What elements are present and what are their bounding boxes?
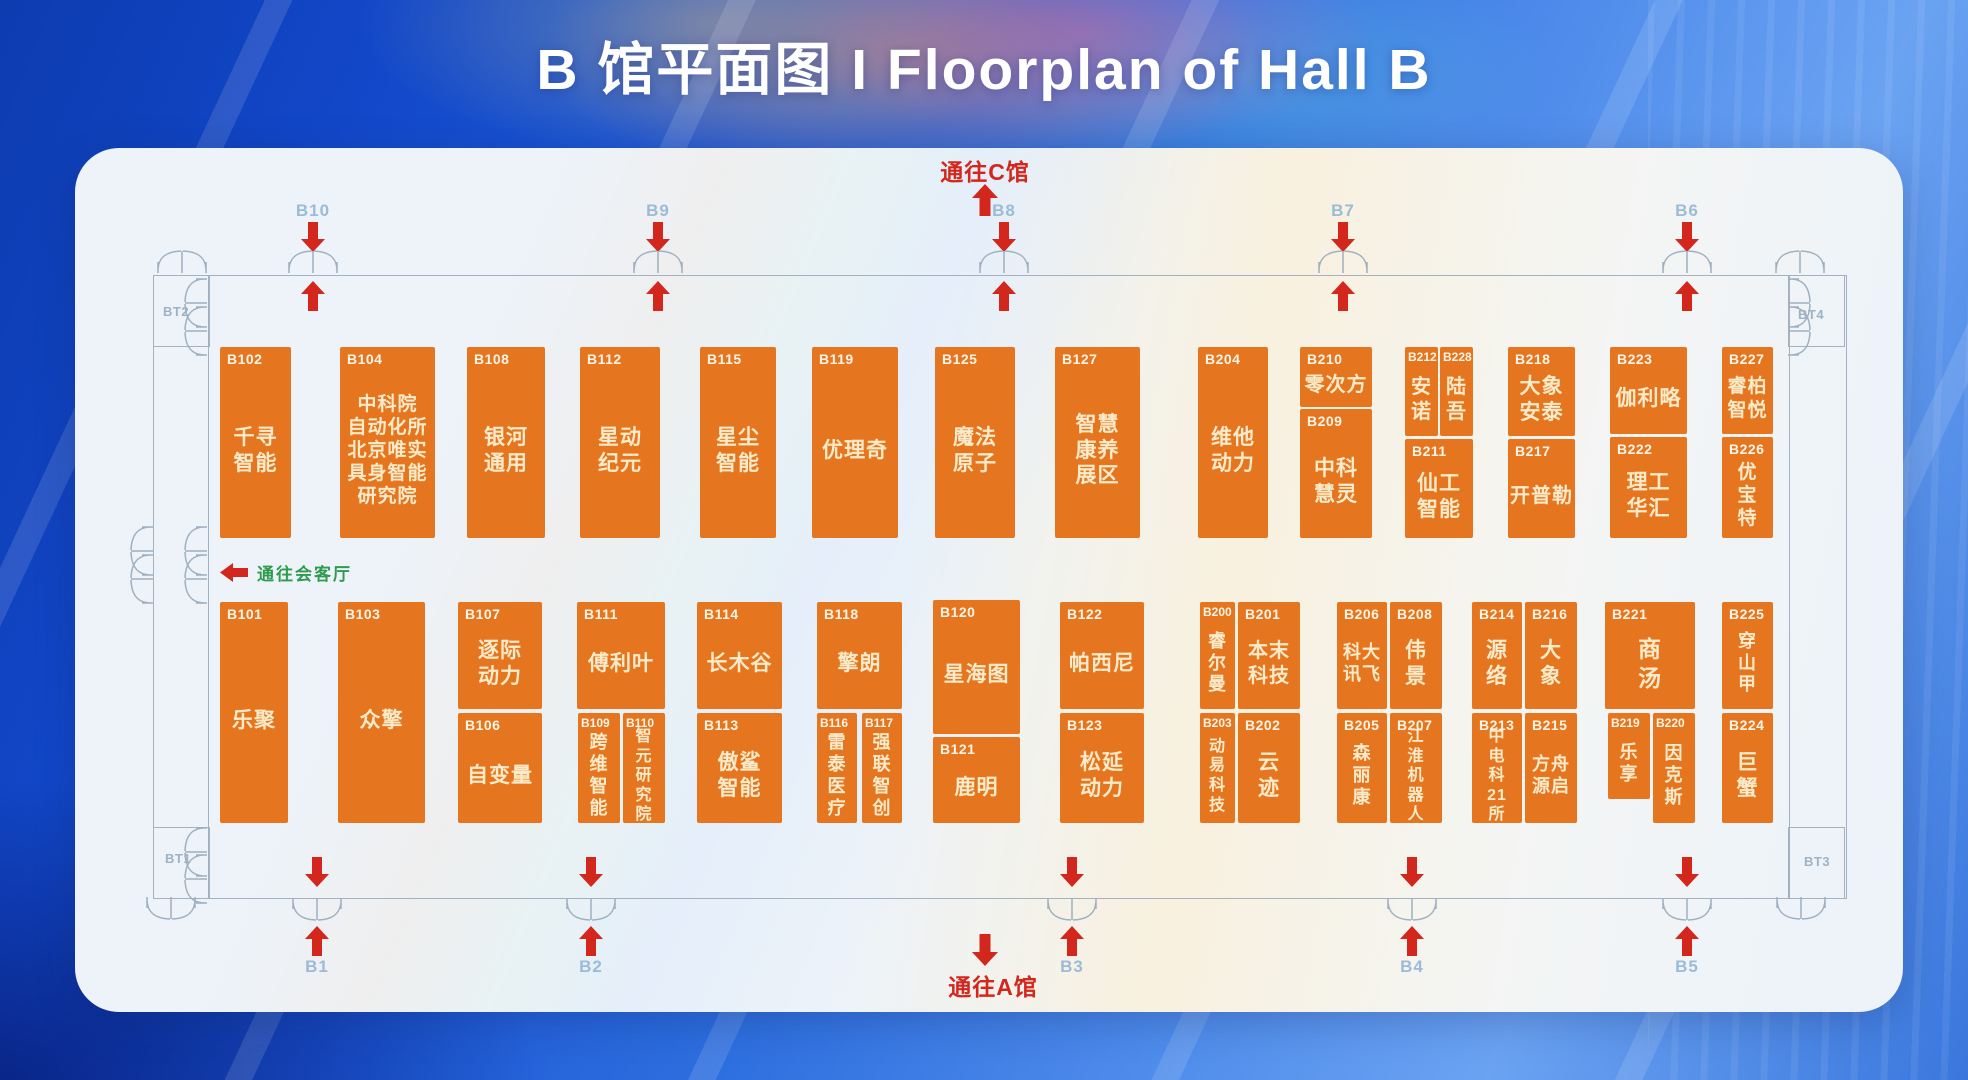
booth-name: 乐聚 xyxy=(220,602,288,823)
page-title: B 馆平面图 I Floorplan of Hall B xyxy=(0,24,1968,106)
booth-B106: B106自变量 xyxy=(458,713,542,823)
booth-B213: B213中电科21所 xyxy=(1472,713,1522,823)
booth-name: 乐享 xyxy=(1608,713,1650,799)
booth-name: 江淮机器人 xyxy=(1390,713,1442,823)
booth-name: 安诺 xyxy=(1405,347,1438,436)
booth-name: 众擎 xyxy=(338,602,425,823)
booth-B117: B117强联智创 xyxy=(862,713,902,823)
double-door-icon xyxy=(127,553,153,605)
booth-B220: B220因克斯 xyxy=(1653,713,1695,823)
sign-to-lounge-text: 通往会客厅 xyxy=(257,560,352,585)
gate-label-B1: B1 xyxy=(305,957,329,977)
booth-name: 陆吾 xyxy=(1440,347,1473,436)
booth-name: 因克斯 xyxy=(1653,713,1695,823)
double-door-icon xyxy=(1661,247,1713,273)
booth-name: 睿柏智悦 xyxy=(1722,347,1773,434)
double-door-icon xyxy=(181,553,207,605)
booth-name: 银河通用 xyxy=(467,347,545,538)
booth-B210: B210零次方 xyxy=(1300,347,1372,407)
sign-to-hall-c: 通往C馆 xyxy=(925,153,1045,187)
floorplan-page: B 馆平面图 I Floorplan of Hall B B10 B9 B8 xyxy=(0,0,1968,1080)
gate-arrow-down-icon xyxy=(579,857,603,887)
double-door-icon xyxy=(1775,897,1827,923)
booth-B125: B125魔法原子 xyxy=(935,347,1015,538)
gate-arrow-up-icon xyxy=(305,926,329,956)
gate-arrow-up-icon xyxy=(1060,926,1084,956)
gate-arrow-down-icon xyxy=(305,857,329,887)
booth-B212: B212安诺 xyxy=(1405,347,1438,436)
booth-name: 大象 xyxy=(1525,602,1577,709)
booth-B102: B102千寻智能 xyxy=(220,347,291,538)
booth-B227: B227睿柏智悦 xyxy=(1722,347,1773,434)
booth-B127: B127智慧康养展区 xyxy=(1055,347,1140,538)
booth-B223: B223伽利略 xyxy=(1610,347,1687,434)
gate-label-B7: B7 xyxy=(1331,201,1355,221)
booth-name: 睿尔曼 xyxy=(1200,602,1235,709)
gate-label-B10: B10 xyxy=(296,201,330,221)
booth-name: 智元研究院 xyxy=(623,713,665,823)
booth-B112: B112星动纪元 xyxy=(580,347,660,538)
gate-label-B3: B3 xyxy=(1060,957,1084,977)
booth-name: 科大讯飞 xyxy=(1337,602,1387,709)
booth-name: 本末科技 xyxy=(1238,602,1300,709)
booth-B123: B123松延动力 xyxy=(1060,713,1144,823)
booth-B111: B111傅利叶 xyxy=(577,602,665,709)
to-hall-c-up-arrow-icon xyxy=(972,184,998,216)
booth-name: 中科慧灵 xyxy=(1300,409,1372,538)
booth-name: 伟景 xyxy=(1390,602,1442,709)
booth-B209: B209中科慧灵 xyxy=(1300,409,1372,538)
booth-B215: B215方舟源启 xyxy=(1525,713,1577,823)
booth-name: 优理奇 xyxy=(812,347,898,538)
booth-B221: B221商汤 xyxy=(1605,602,1695,709)
double-door-icon xyxy=(1661,898,1713,924)
booth-B104: B104中科院自动化所北京唯实具身智能研究院 xyxy=(340,347,435,538)
booth-B122: B122帕西尼 xyxy=(1060,602,1144,709)
booth-name: 优宝特 xyxy=(1722,437,1773,538)
double-door-icon xyxy=(145,897,197,923)
booth-name: 星尘智能 xyxy=(700,347,776,538)
booth-B116: B116雷泰医疗 xyxy=(817,713,857,823)
gate-arrow-up-icon xyxy=(992,281,1016,311)
booth-name: 方舟源启 xyxy=(1525,713,1577,823)
sign-to-hall-a-text: 通往A馆 xyxy=(948,974,1038,1000)
booth-B103: B103众擎 xyxy=(338,602,425,823)
booth-name: 逐际动力 xyxy=(458,602,542,709)
double-door-icon xyxy=(1317,247,1369,273)
gate-arrow-up-icon xyxy=(301,281,325,311)
booth-B211: B211仙工智能 xyxy=(1405,439,1473,538)
gate-arrow-up-icon xyxy=(646,281,670,311)
booth-B217: B217开普勒 xyxy=(1508,439,1575,538)
booth-name: 星海图 xyxy=(933,600,1020,734)
booth-B222: B222理工华汇 xyxy=(1610,437,1687,538)
booth-name: 中电科21所 xyxy=(1472,713,1522,823)
booth-name: 星动纪元 xyxy=(580,347,660,538)
booth-B228: B228陆吾 xyxy=(1440,347,1473,436)
booth-B114: B114长木谷 xyxy=(697,602,782,709)
booth-name: 自变量 xyxy=(458,713,542,823)
booth-B108: B108银河通用 xyxy=(467,347,545,538)
booth-B119: B119优理奇 xyxy=(812,347,898,538)
booth-B204: B204维他动力 xyxy=(1198,347,1268,538)
booth-B109: B109跨维智能 xyxy=(578,713,620,823)
booth-B115: B115星尘智能 xyxy=(700,347,776,538)
booth-name: 中科院自动化所北京唯实具身智能研究院 xyxy=(340,347,435,538)
gate-arrow-down-icon xyxy=(1675,857,1699,887)
booth-B200: B200睿尔曼 xyxy=(1200,602,1235,709)
booth-B219: B219乐享 xyxy=(1608,713,1650,799)
booth-B121: B121鹿明 xyxy=(933,737,1020,823)
corner-label-BT4: BT4 xyxy=(1798,307,1824,322)
corner-label-BT3: BT3 xyxy=(1804,854,1830,869)
double-door-icon xyxy=(291,898,343,924)
booth-B202: B202云迹 xyxy=(1238,713,1300,823)
booth-name: 雷泰医疗 xyxy=(817,713,857,823)
double-door-icon xyxy=(1386,898,1438,924)
booth-name: 长木谷 xyxy=(697,602,782,709)
booth-name: 巨蟹 xyxy=(1722,713,1773,823)
booth-name: 开普勒 xyxy=(1508,439,1575,538)
booth-name: 动易科技 xyxy=(1200,713,1235,823)
double-door-icon xyxy=(1046,898,1098,924)
booth-B110: B110智元研究院 xyxy=(623,713,665,823)
booth-name: 零次方 xyxy=(1300,347,1372,407)
gate-label-B4: B4 xyxy=(1400,957,1424,977)
booth-name: 强联智创 xyxy=(862,713,902,823)
booth-name: 魔法原子 xyxy=(935,347,1015,538)
booth-B218: B218大象安泰 xyxy=(1508,347,1575,436)
booth-B101: B101乐聚 xyxy=(220,602,288,823)
double-door-icon xyxy=(565,898,617,924)
booth-B120: B120星海图 xyxy=(933,600,1020,734)
to-hall-a-down-arrow-icon xyxy=(972,934,998,966)
booth-name: 跨维智能 xyxy=(578,713,620,823)
booth-B206: B206科大讯飞 xyxy=(1337,602,1387,709)
booth-name: 傅利叶 xyxy=(577,602,665,709)
double-door-icon xyxy=(287,247,339,273)
gate-arrow-up-icon xyxy=(1331,281,1355,311)
booth-B226: B226优宝特 xyxy=(1722,437,1773,538)
booth-name: 伽利略 xyxy=(1610,347,1687,434)
booth-name: 擎朗 xyxy=(817,602,902,709)
booth-name: 穿山甲 xyxy=(1722,602,1773,709)
gate-label-B9: B9 xyxy=(646,201,670,221)
booth-B208: B208伟景 xyxy=(1390,602,1442,709)
sign-to-lounge: 通往会客厅 xyxy=(220,560,352,585)
booth-name: 松延动力 xyxy=(1060,713,1144,823)
gate-label-B5: B5 xyxy=(1675,957,1699,977)
double-door-icon xyxy=(978,247,1030,273)
double-door-icon xyxy=(1774,247,1826,273)
gate-arrow-down-icon xyxy=(1060,857,1084,887)
booth-name: 鹿明 xyxy=(933,737,1020,823)
booth-name: 维他动力 xyxy=(1198,347,1268,538)
booth-name: 傲鲨智能 xyxy=(697,713,782,823)
booth-name: 大象安泰 xyxy=(1508,347,1575,436)
booth-B216: B216大象 xyxy=(1525,602,1577,709)
gate-arrow-up-icon xyxy=(1400,926,1424,956)
booth-name: 源络 xyxy=(1472,602,1522,709)
gate-arrow-up-icon xyxy=(1675,281,1699,311)
gate-arrow-up-icon xyxy=(579,926,603,956)
booth-B207: B207江淮机器人 xyxy=(1390,713,1442,823)
to-lounge-left-arrow-icon xyxy=(220,563,248,582)
booth-name: 智慧康养展区 xyxy=(1055,347,1140,538)
gate-arrow-down-icon xyxy=(1400,857,1424,887)
booth-B113: B113傲鲨智能 xyxy=(697,713,782,823)
double-door-icon xyxy=(632,247,684,273)
booth-name: 云迹 xyxy=(1238,713,1300,823)
booth-B203: B203动易科技 xyxy=(1200,713,1235,823)
booth-name: 商汤 xyxy=(1605,602,1695,709)
booth-name: 理工华汇 xyxy=(1610,437,1687,538)
double-door-icon xyxy=(156,247,208,273)
booth-name: 仙工智能 xyxy=(1405,439,1473,538)
corner-label-BT2: BT2 xyxy=(163,304,189,319)
booth-B201: B201本末科技 xyxy=(1238,602,1300,709)
booth-name: 森丽康 xyxy=(1337,713,1387,823)
sign-to-hall-a: 通往A馆 xyxy=(923,968,1063,1002)
gate-arrow-up-icon xyxy=(1675,926,1699,956)
booth-B118: B118擎朗 xyxy=(817,602,902,709)
booth-B107: B107逐际动力 xyxy=(458,602,542,709)
booth-B225: B225穿山甲 xyxy=(1722,602,1773,709)
booth-B224: B224巨蟹 xyxy=(1722,713,1773,823)
gate-label-B2: B2 xyxy=(579,957,603,977)
sign-to-hall-c-text: 通往C馆 xyxy=(940,159,1030,185)
gate-label-B6: B6 xyxy=(1675,201,1699,221)
corner-label-BT1: BT1 xyxy=(165,851,191,866)
booth-name: 帕西尼 xyxy=(1060,602,1144,709)
booth-B214: B214源络 xyxy=(1472,602,1522,709)
booth-B205: B205森丽康 xyxy=(1337,713,1387,823)
booth-name: 千寻智能 xyxy=(220,347,291,538)
